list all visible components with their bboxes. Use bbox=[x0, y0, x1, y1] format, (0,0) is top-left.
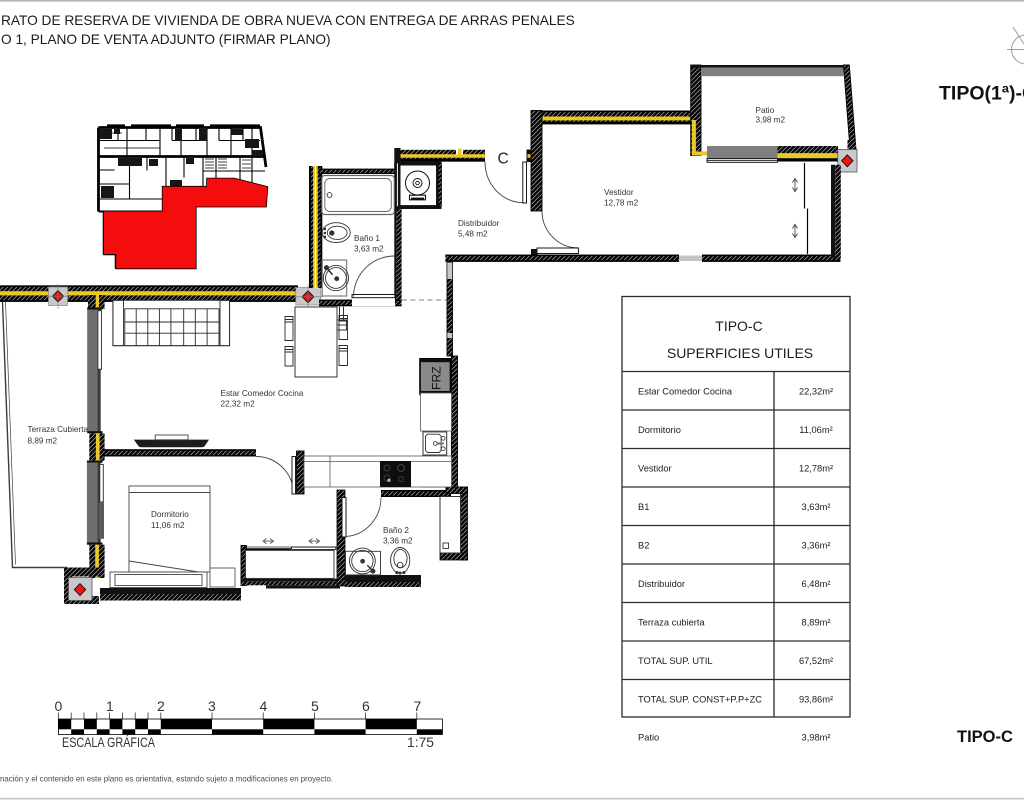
svg-text:11,06 m2: 11,06 m2 bbox=[151, 521, 185, 530]
svg-text:TIPO-C: TIPO-C bbox=[715, 318, 762, 334]
svg-text:Patio: Patio bbox=[756, 106, 775, 115]
svg-text:6: 6 bbox=[362, 698, 370, 714]
svg-text:FRZ: FRZ bbox=[430, 366, 444, 390]
svg-text:Terraza Cubierta: Terraza Cubierta bbox=[28, 425, 89, 434]
svg-text:7: 7 bbox=[414, 698, 422, 714]
svg-text:12,78m²: 12,78m² bbox=[799, 464, 833, 474]
svg-text:3,98m²: 3,98m² bbox=[802, 733, 831, 743]
svg-text:8,89 m2: 8,89 m2 bbox=[28, 437, 58, 446]
svg-text:Dormitorio: Dormitorio bbox=[151, 510, 189, 519]
svg-text:4: 4 bbox=[260, 698, 268, 714]
svg-text:22,32m²: 22,32m² bbox=[799, 387, 833, 397]
svg-text:B2: B2 bbox=[638, 541, 649, 551]
svg-text:3,63 m2: 3,63 m2 bbox=[354, 245, 384, 254]
svg-text:TIPO-C: TIPO-C bbox=[957, 728, 1013, 746]
svg-text:3,36 m2: 3,36 m2 bbox=[383, 537, 413, 546]
svg-text:93,86m²: 93,86m² bbox=[799, 695, 833, 705]
svg-text:3,63m²: 3,63m² bbox=[802, 502, 831, 512]
svg-text:Baño 1: Baño 1 bbox=[354, 234, 380, 243]
svg-text:nación y el contenido en este: nación y el contenido en este plano es o… bbox=[0, 775, 333, 784]
svg-text:B1: B1 bbox=[638, 502, 649, 512]
svg-text:Vestidor: Vestidor bbox=[604, 188, 634, 197]
svg-text:0: 0 bbox=[55, 698, 63, 714]
svg-text:1: 1 bbox=[106, 698, 114, 714]
svg-text:22,32 m2: 22,32 m2 bbox=[221, 400, 256, 409]
svg-text:Distribuidor: Distribuidor bbox=[458, 219, 500, 228]
svg-text:Dormitorio: Dormitorio bbox=[638, 425, 681, 435]
svg-text:ESCALA GRÁFICA: ESCALA GRÁFICA bbox=[62, 735, 156, 750]
svg-text:11,06m²: 11,06m² bbox=[799, 425, 832, 435]
svg-text:Baño 2: Baño 2 bbox=[383, 526, 409, 535]
svg-text:O 1, PLANO DE VENTA ADJUNTO (F: O 1, PLANO DE VENTA ADJUNTO (FIRMAR PLAN… bbox=[1, 32, 331, 47]
svg-text:TOTAL SUP. CONST+P.P+ZC: TOTAL SUP. CONST+P.P+ZC bbox=[638, 695, 762, 705]
svg-text:12,78 m2: 12,78 m2 bbox=[604, 199, 639, 208]
svg-text:Estar Comedor Cocina: Estar Comedor Cocina bbox=[638, 387, 733, 397]
svg-text:3: 3 bbox=[208, 698, 216, 714]
svg-text:TIPO(1ª)-C: TIPO(1ª)-C bbox=[939, 83, 1024, 105]
svg-text:Distribuidor: Distribuidor bbox=[638, 579, 685, 589]
svg-text:67,52m²: 67,52m² bbox=[799, 656, 833, 666]
svg-text:8,89m²: 8,89m² bbox=[802, 618, 831, 628]
svg-text:3,98 m2: 3,98 m2 bbox=[756, 116, 786, 125]
svg-text:3,36m²: 3,36m² bbox=[802, 541, 831, 551]
svg-text:1:75: 1:75 bbox=[407, 735, 434, 750]
svg-text:5,48 m2: 5,48 m2 bbox=[458, 230, 488, 239]
svg-text:TOTAL SUP. UTIL: TOTAL SUP. UTIL bbox=[638, 656, 713, 666]
svg-text:RATO DE RESERVA DE VIVIENDA DE: RATO DE RESERVA DE VIVIENDA DE OBRA NUEV… bbox=[1, 13, 575, 28]
svg-text:Vestidor: Vestidor bbox=[638, 464, 672, 474]
svg-text:Patio: Patio bbox=[638, 733, 659, 743]
svg-text:SUPERFICIES UTILES: SUPERFICIES UTILES bbox=[667, 345, 813, 361]
svg-text:5: 5 bbox=[311, 698, 319, 714]
svg-text:Estar Comedor Cocina: Estar Comedor Cocina bbox=[221, 389, 304, 398]
svg-text:6,48m²: 6,48m² bbox=[802, 579, 831, 589]
svg-text:2: 2 bbox=[157, 698, 165, 714]
svg-text:C: C bbox=[498, 151, 509, 168]
svg-text:Terraza cubierta: Terraza cubierta bbox=[638, 618, 705, 628]
